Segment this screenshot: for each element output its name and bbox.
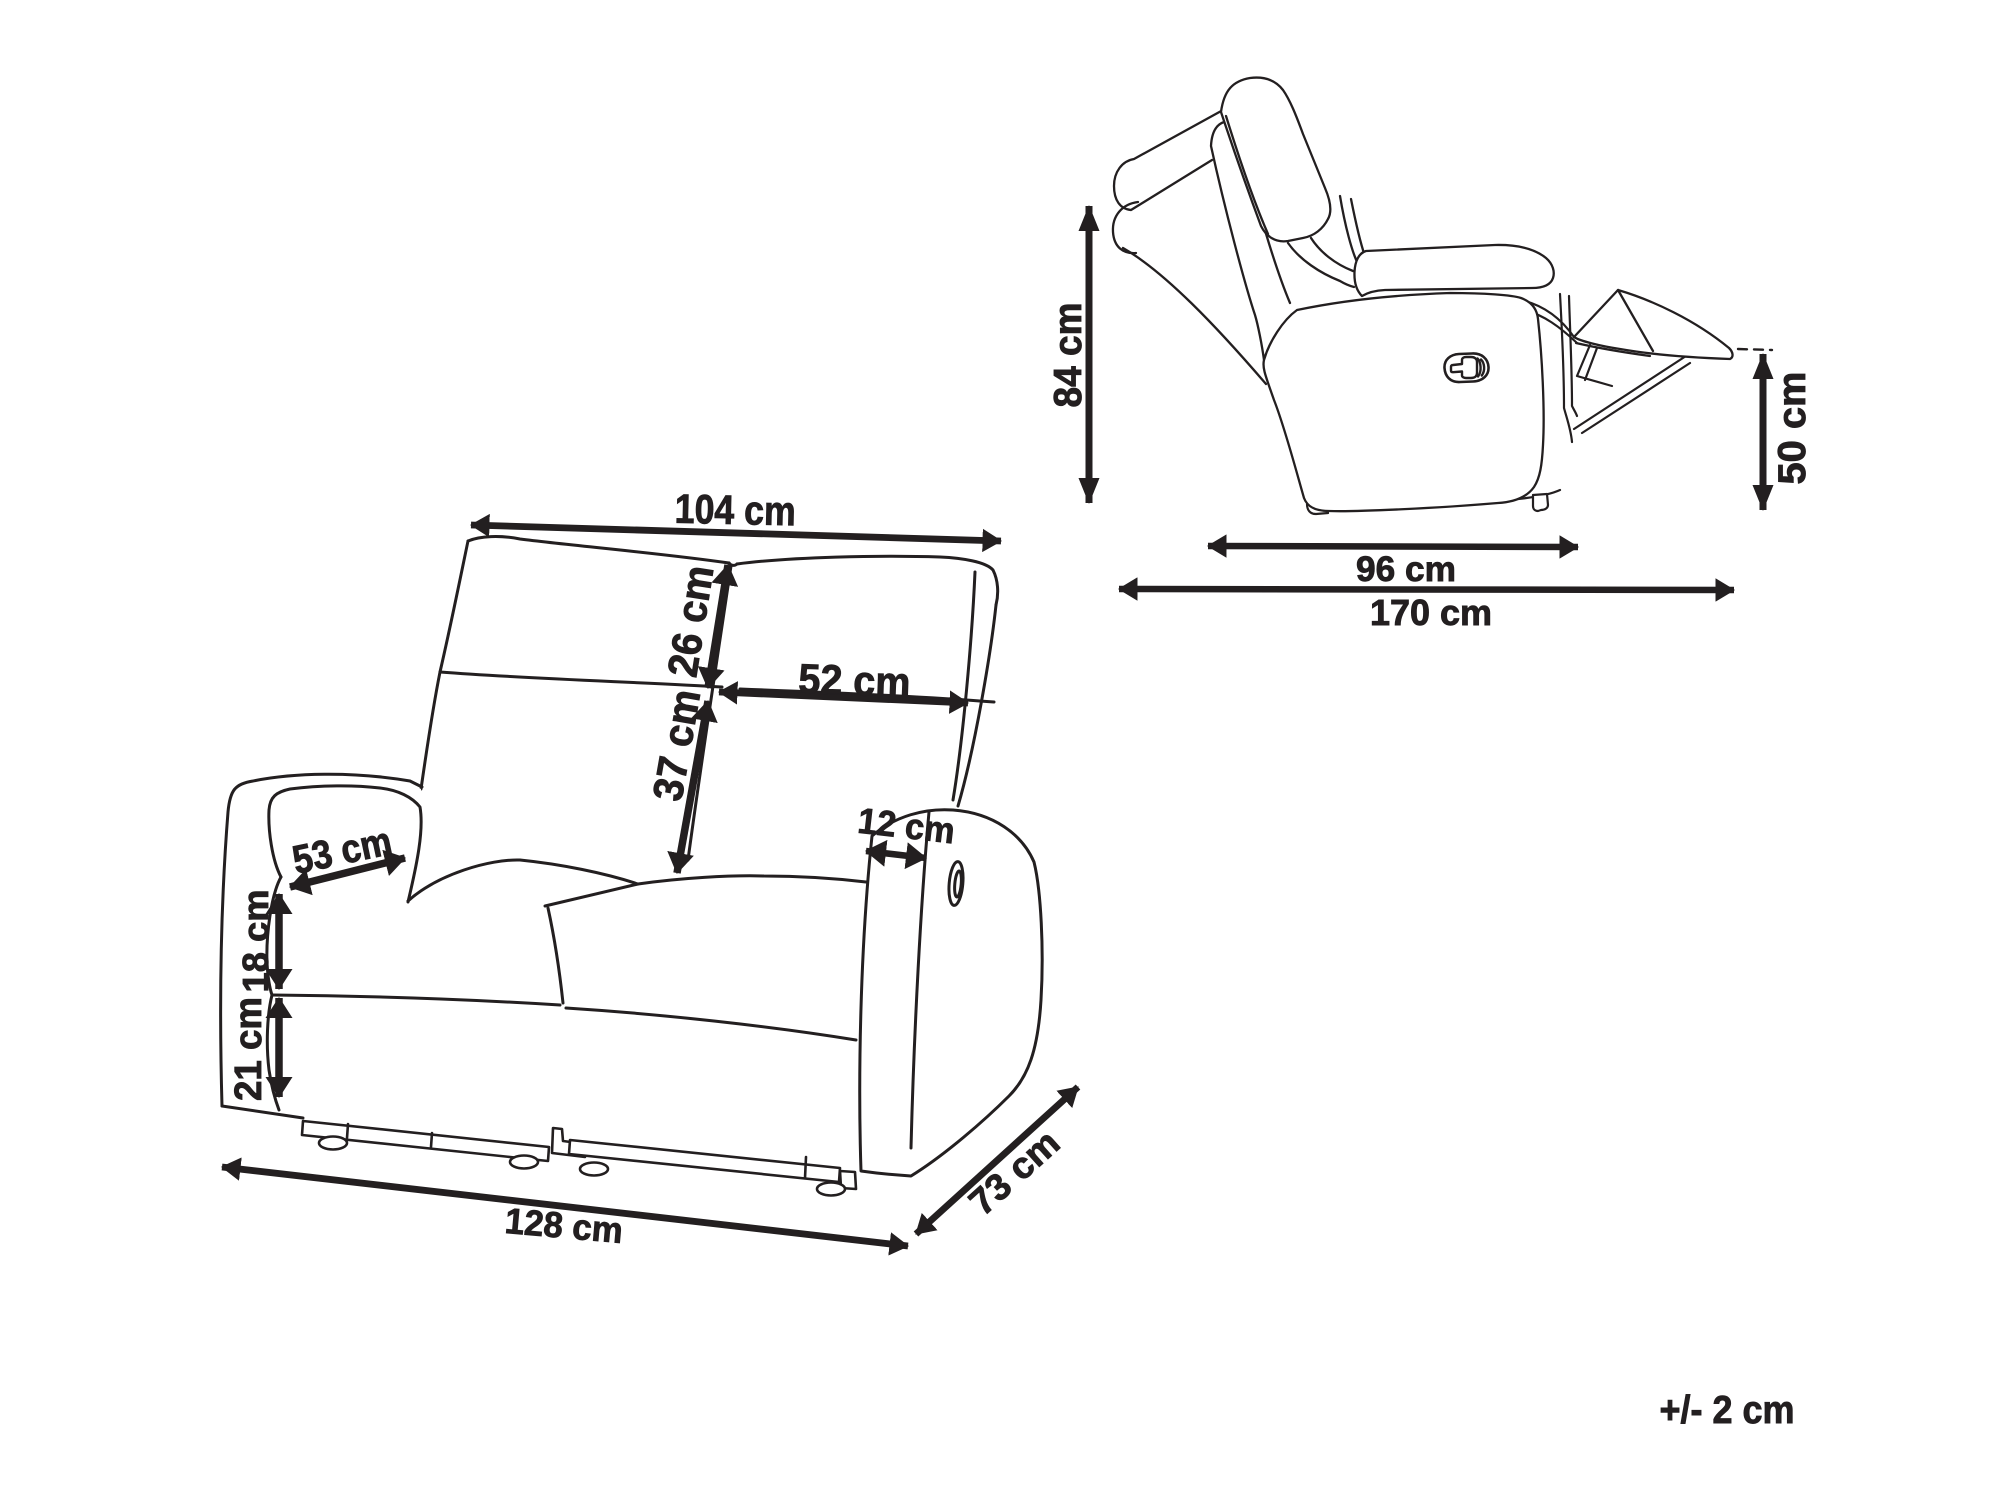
svg-text:21 cm: 21 cm — [228, 997, 270, 1101]
svg-text:170 cm: 170 cm — [1370, 592, 1492, 633]
svg-text:84 cm: 84 cm — [1047, 303, 1090, 408]
svg-text:104 cm: 104 cm — [674, 486, 796, 535]
svg-text:50 cm: 50 cm — [1771, 372, 1814, 485]
svg-text:96 cm: 96 cm — [1356, 550, 1456, 589]
svg-text:18 cm: 18 cm — [235, 890, 276, 993]
svg-text:52 cm: 52 cm — [798, 655, 912, 706]
svg-text:+/- 2 cm: +/- 2 cm — [1660, 1389, 1795, 1432]
